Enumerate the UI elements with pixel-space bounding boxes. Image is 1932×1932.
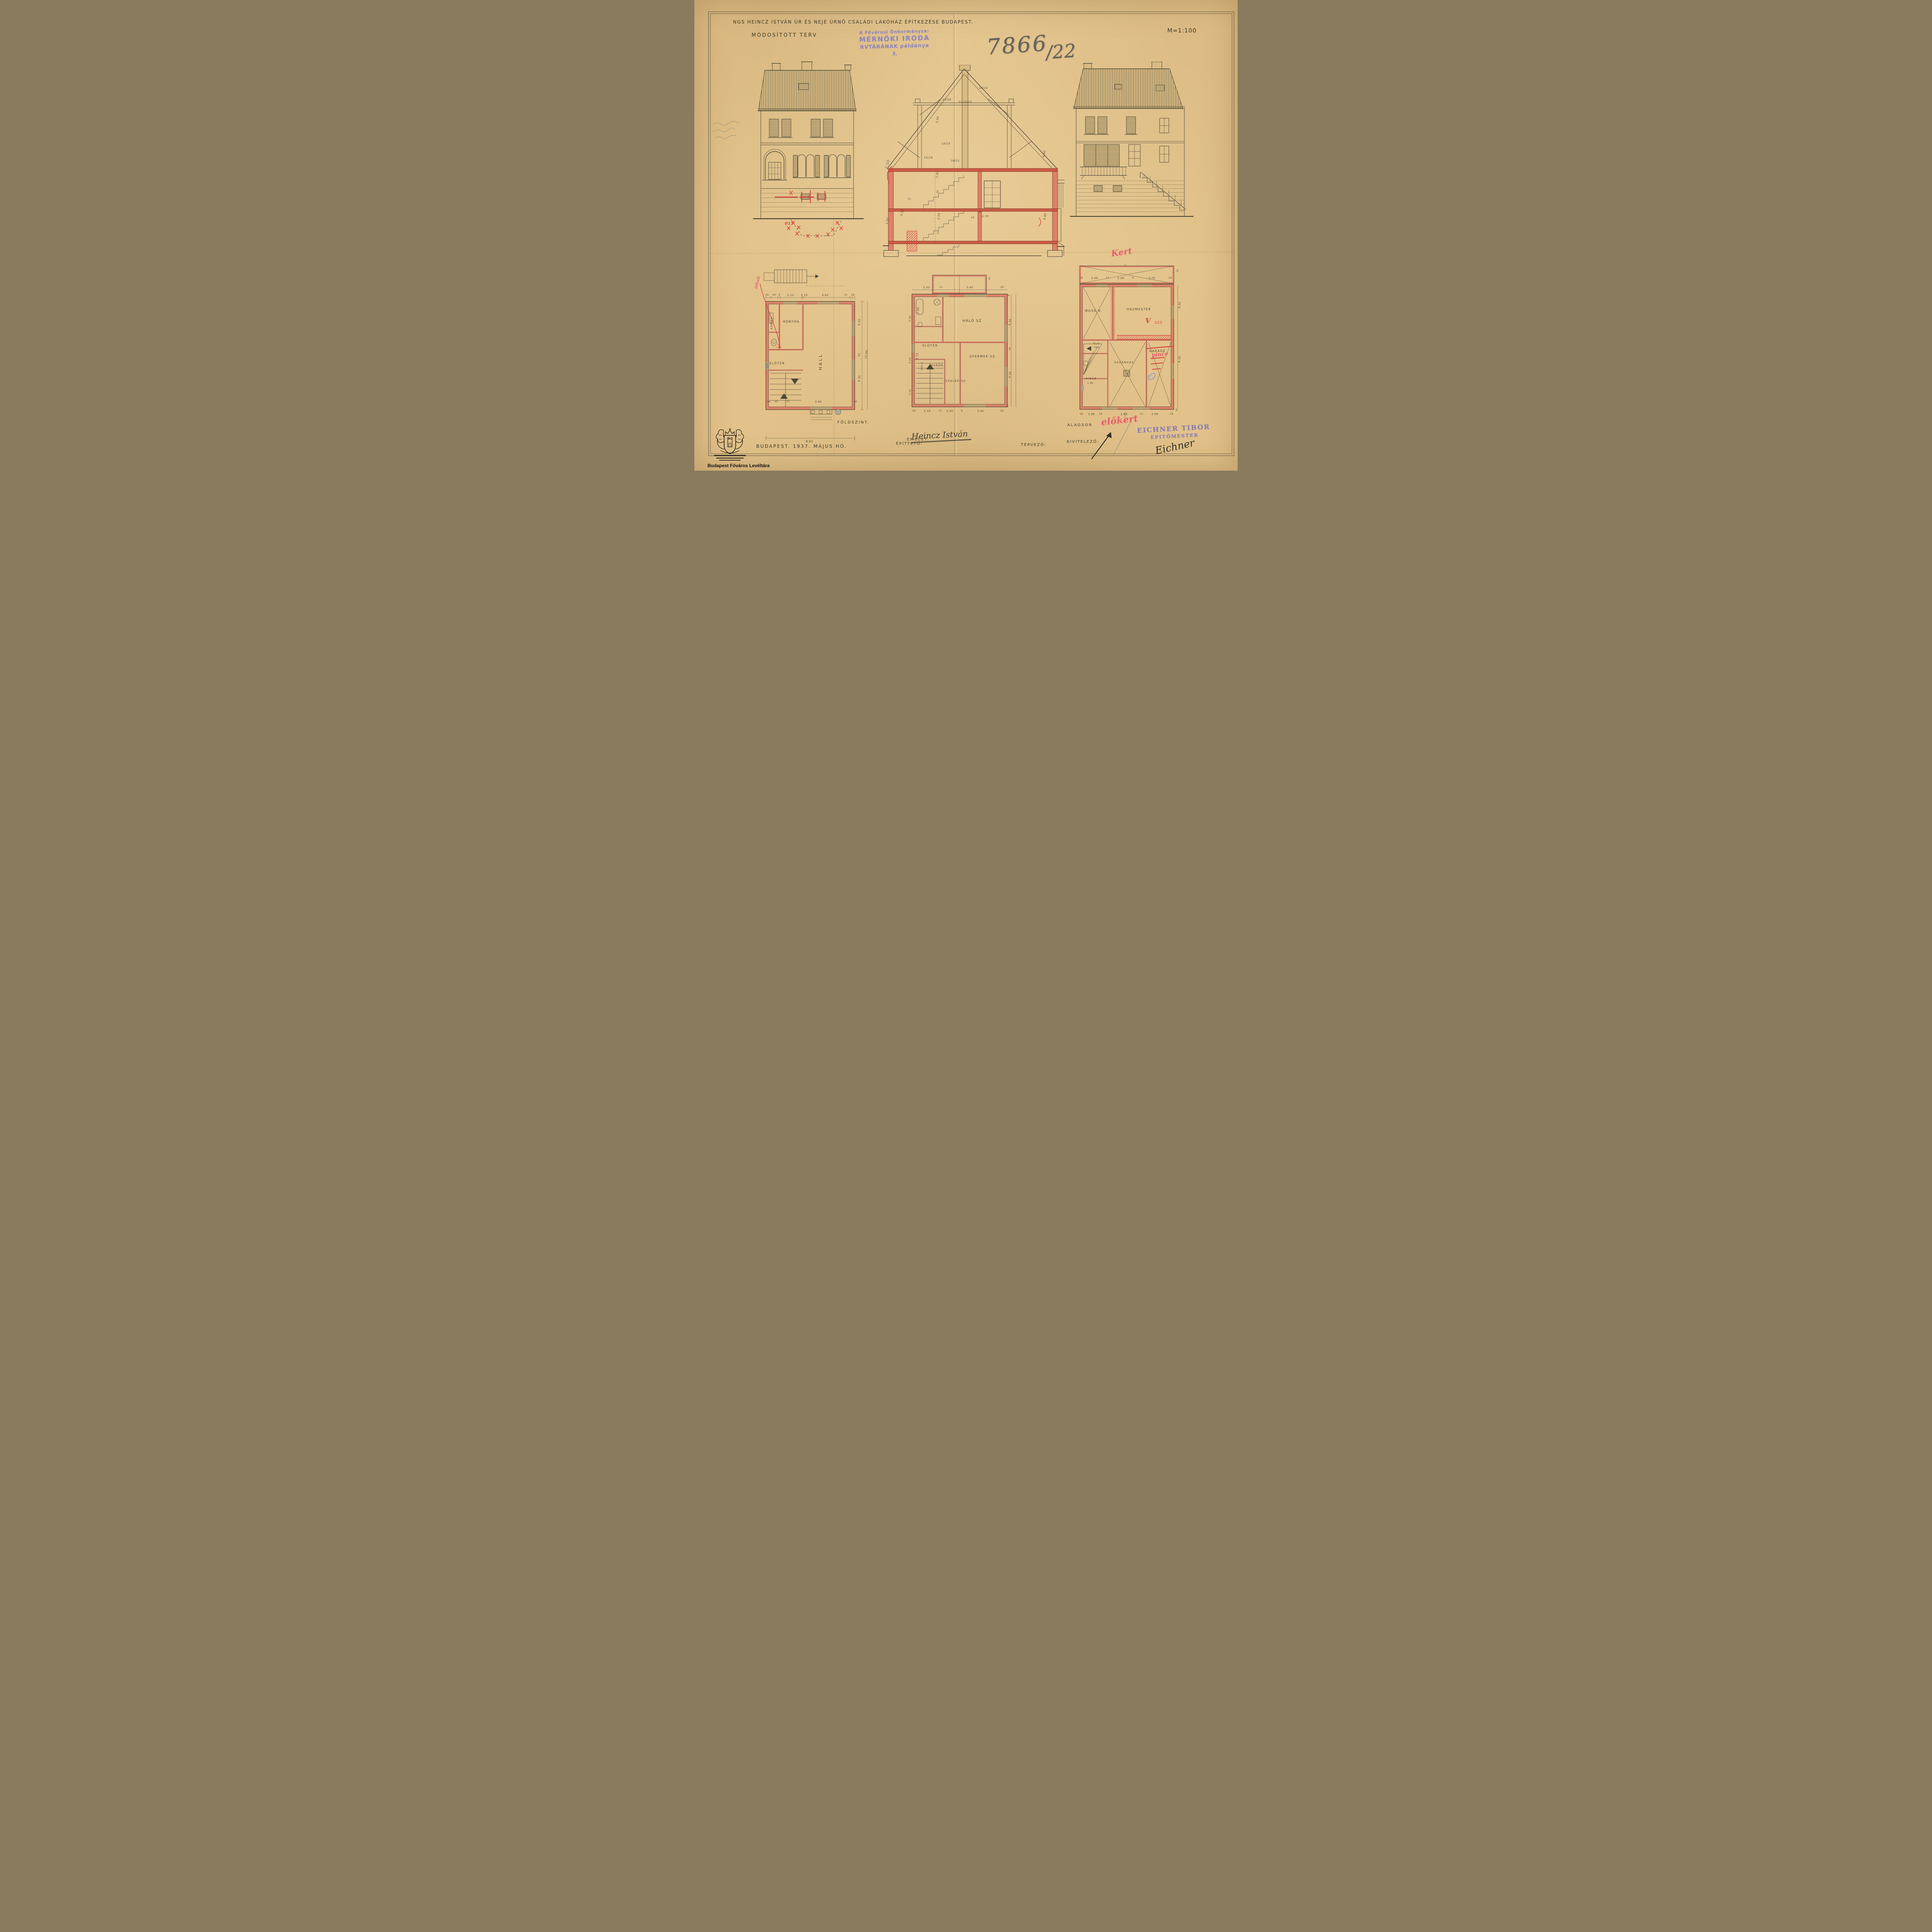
basement-plan: Kert41282.09122.0083.7528MOSÓ K.HÁZMESTE… bbox=[1063, 247, 1191, 444]
front-elevation: 015 bbox=[752, 61, 864, 243]
archive-coat-of-arms bbox=[708, 427, 752, 463]
upper-floor-plan: 2.50155.4028412.501.75MOLY.GARDR.HÁLÓ SZ… bbox=[898, 267, 1022, 454]
basement-plan-drawing bbox=[1063, 247, 1191, 444]
rear-elevation-drawing bbox=[1068, 62, 1196, 232]
designer-label: TERVEZŐ: bbox=[1021, 443, 1046, 447]
rear-elevation bbox=[1068, 62, 1196, 232]
page-title: NGS HEINCZ ISTVÁN ÚR ÉS NEJE ÚRNŐ CSALÁD… bbox=[733, 19, 974, 25]
file-number-sub: /22 bbox=[1045, 40, 1077, 63]
date-line: BUDAPEST. 1937. MÁJUS HÓ. bbox=[756, 444, 847, 449]
cross-section: 10/132×10/1515/183.5015/1515/1818/217.50… bbox=[883, 65, 1065, 258]
office-stamp: A Fővárosi Önkormányza: MÉRNÖKI IRODA RV… bbox=[848, 28, 941, 58]
contractor-label: KIVITELEZŐ: bbox=[1067, 440, 1099, 444]
scale-label: M=1:100 bbox=[1167, 27, 1197, 34]
cross-section-drawing bbox=[883, 65, 1065, 258]
plan-subtitle: MÓDOSÍTOTT TERV bbox=[752, 32, 817, 38]
file-number-main: 7866 bbox=[986, 31, 1049, 60]
blueprint-sheet: NGS HEINCZ ISTVÁN ÚR ÉS NEJE ÚRNŐ CSALÁD… bbox=[694, 0, 1238, 471]
basement-plan-title: ALAGSOR bbox=[1067, 423, 1093, 427]
archive-caption: Budapest Főváros Levéltára bbox=[707, 463, 770, 468]
ground-floor-plan: 289082.100.154.824128KAMRAKONYHAELŐTÉRHA… bbox=[752, 267, 872, 452]
ground-plan-title: FÖLDSZINT. bbox=[837, 420, 870, 425]
front-elevation-drawing bbox=[752, 61, 864, 243]
upper-floor-plan-drawing bbox=[898, 267, 1022, 454]
